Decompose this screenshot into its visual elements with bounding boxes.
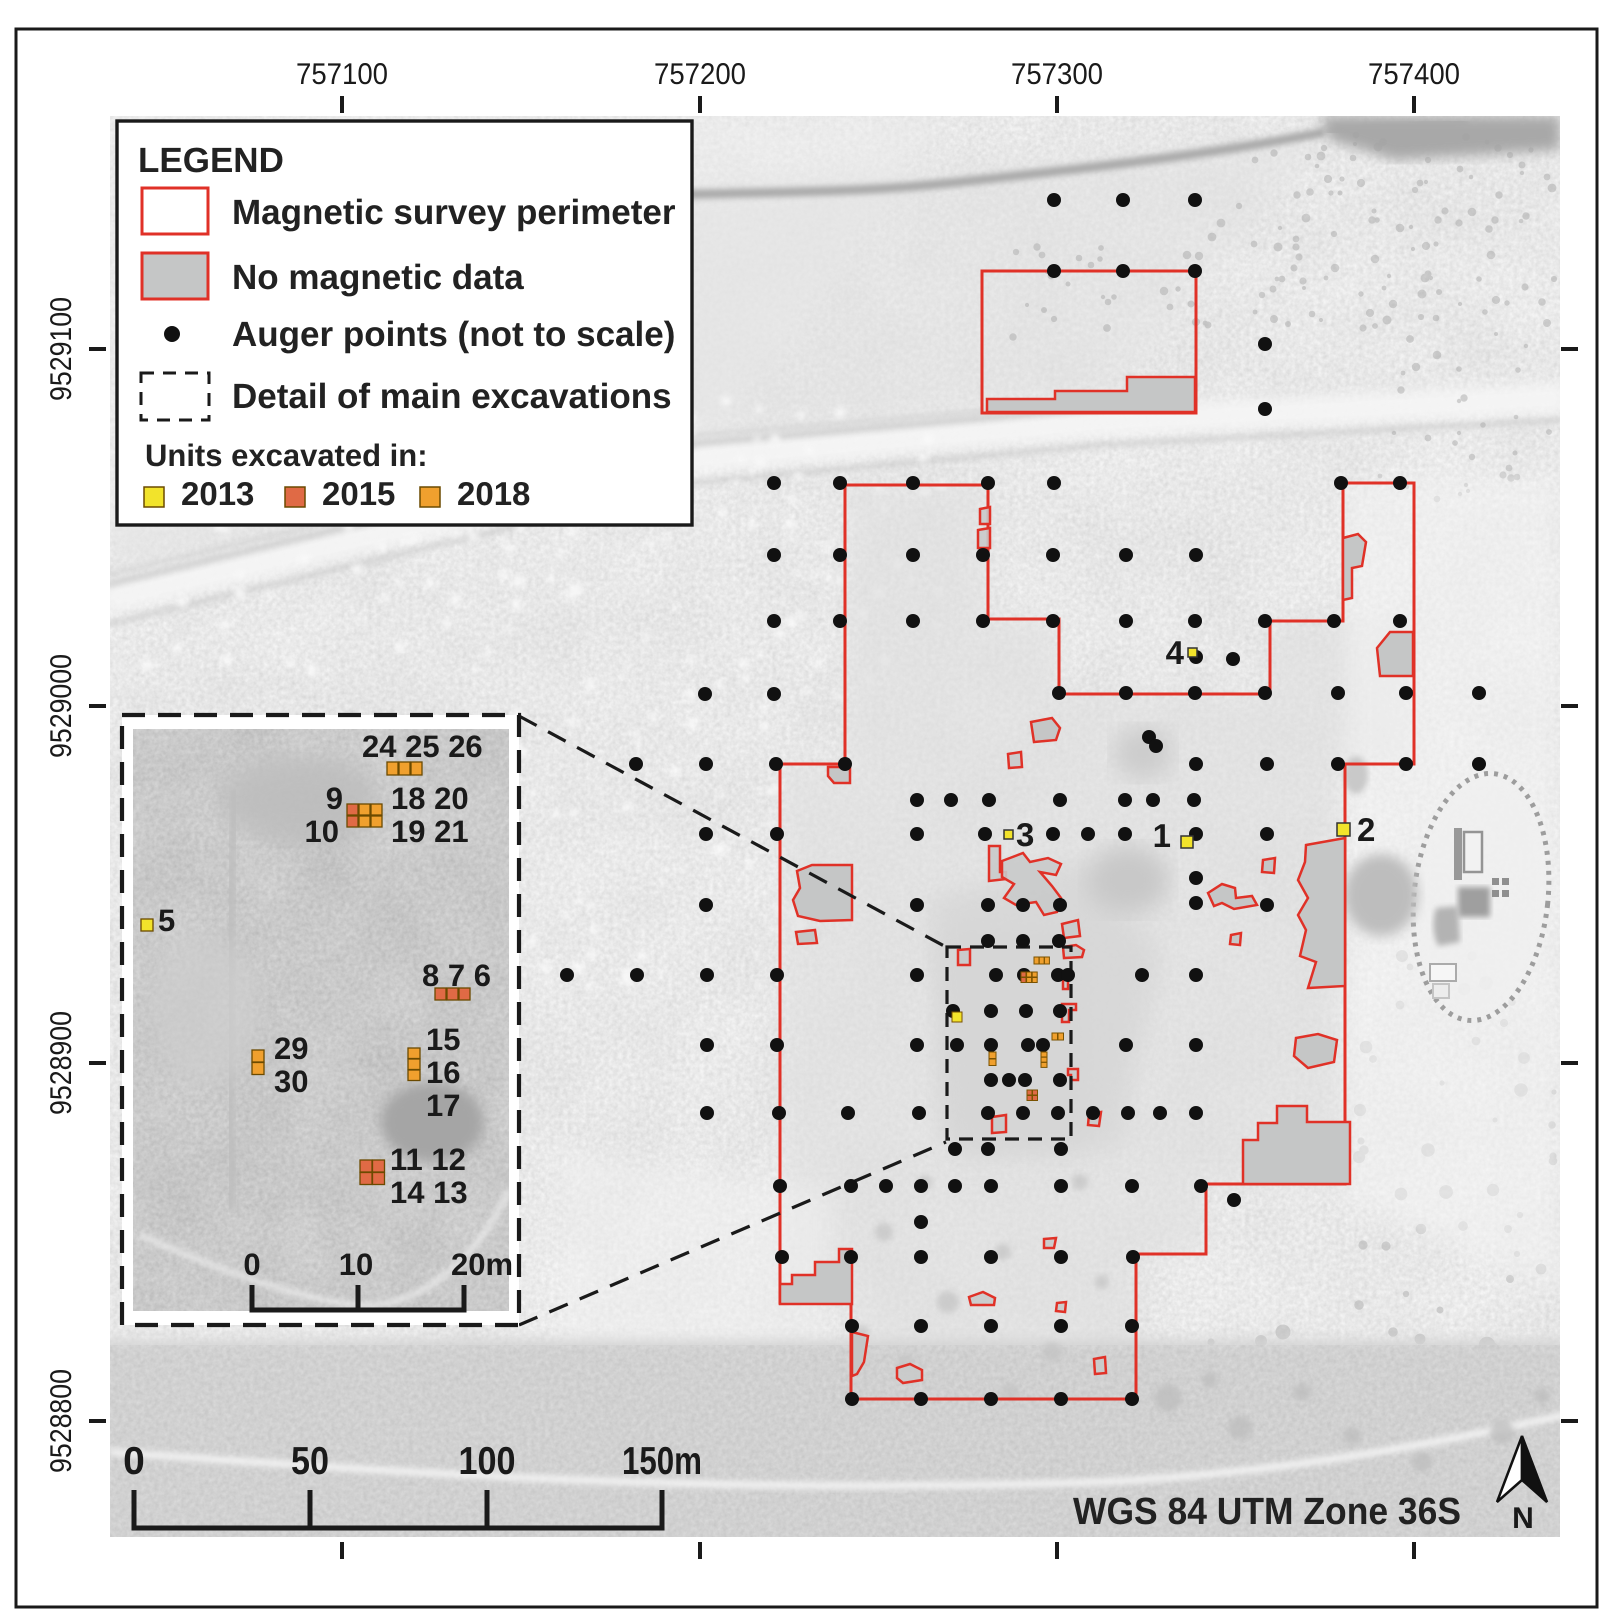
svg-text:8 7 6: 8 7 6 [422,958,491,993]
svg-text:100: 100 [459,1440,516,1483]
svg-text:24 25 26: 24 25 26 [362,729,483,764]
svg-text:16: 16 [426,1055,460,1090]
svg-text:10: 10 [305,814,339,849]
svg-text:29: 29 [274,1031,308,1066]
svg-text:757100: 757100 [296,58,388,91]
svg-text:Detail of main excavations: Detail of main excavations [232,377,672,416]
svg-text:10: 10 [339,1247,373,1282]
svg-text:50: 50 [291,1440,329,1483]
svg-text:9: 9 [326,781,343,816]
svg-text:N: N [1512,1502,1534,1535]
svg-text:Auger points (not to scale): Auger points (not to scale) [232,315,675,354]
svg-text:1: 1 [1153,817,1171,854]
svg-text:0: 0 [243,1247,260,1282]
svg-text:757200: 757200 [654,58,746,91]
svg-text:18 20: 18 20 [391,781,469,816]
svg-text:11 12: 11 12 [390,1142,466,1177]
svg-text:17: 17 [426,1088,460,1123]
svg-text:757400: 757400 [1368,58,1460,91]
svg-text:2015: 2015 [322,475,395,512]
svg-text:9529100: 9529100 [45,297,78,401]
svg-text:9529000: 9529000 [45,654,78,758]
svg-text:15: 15 [426,1022,460,1057]
svg-text:2: 2 [1357,811,1375,848]
svg-text:20m: 20m [451,1247,513,1282]
svg-text:757300: 757300 [1011,58,1103,91]
svg-text:LEGEND: LEGEND [138,141,284,180]
svg-text:Magnetic survey perimeter: Magnetic survey perimeter [232,193,676,232]
svg-text:14 13: 14 13 [390,1175,468,1210]
svg-text:Units excavated in:: Units excavated in: [145,438,428,473]
svg-text:WGS 84 UTM Zone 36S: WGS 84 UTM Zone 36S [1073,1491,1461,1533]
svg-text:9528800: 9528800 [45,1369,78,1473]
svg-text:2018: 2018 [457,475,530,512]
svg-text:4: 4 [1166,634,1185,671]
svg-text:30: 30 [274,1064,308,1099]
svg-text:9528900: 9528900 [45,1011,78,1115]
svg-text:19 21: 19 21 [391,814,469,849]
svg-text:3: 3 [1016,816,1034,853]
svg-text:5: 5 [158,903,175,938]
svg-text:No magnetic data: No magnetic data [232,258,524,297]
svg-text:0: 0 [123,1440,145,1483]
svg-text:150m: 150m [622,1440,702,1483]
svg-text:2013: 2013 [181,475,254,512]
